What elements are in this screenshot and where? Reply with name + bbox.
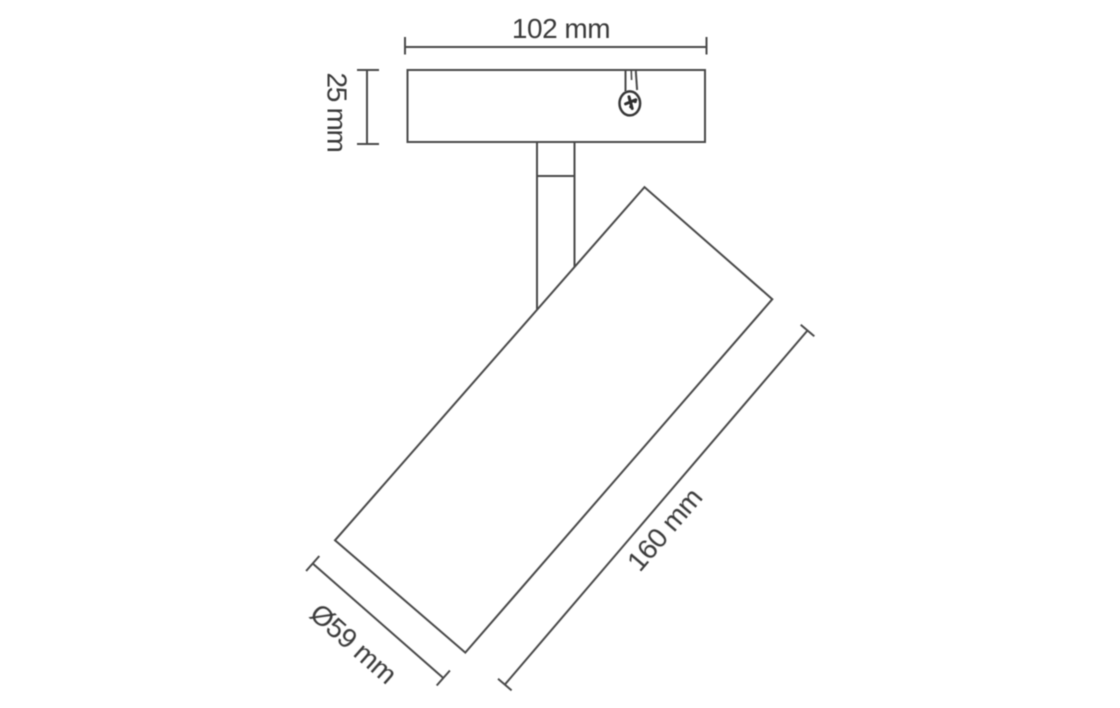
svg-text:Ø59 mm: Ø59 mm [304, 597, 403, 689]
svg-text:25 mm: 25 mm [322, 72, 353, 151]
svg-text:102 mm: 102 mm [512, 13, 610, 44]
